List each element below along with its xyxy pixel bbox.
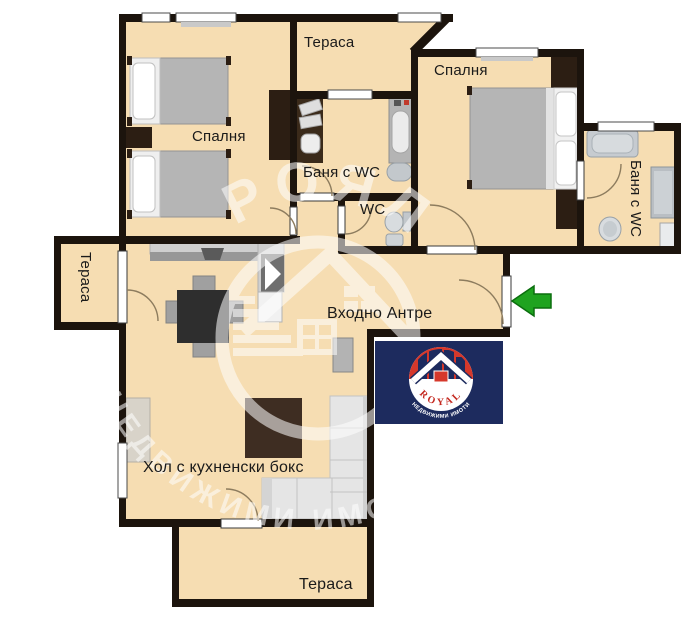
double-bed-icon <box>467 86 578 189</box>
room-label-bathroom-right: Баня с WC <box>627 160 644 237</box>
single-bed-icon <box>127 56 231 126</box>
room-label-bathroom-center: Баня с WC <box>303 164 380 181</box>
room-label-entry-hall: Входно Антре <box>327 305 432 323</box>
washer-icon <box>660 223 675 247</box>
nightstand-icon <box>122 127 152 148</box>
wardrobe-icon <box>551 56 577 89</box>
logo-window-icon <box>434 371 448 382</box>
tap-icon <box>394 100 401 106</box>
room-label-terrace-top: Тераса <box>304 34 354 51</box>
valve-icon <box>404 100 409 105</box>
terrace-left-door <box>118 251 127 323</box>
bathroom-right-door <box>577 161 584 200</box>
toilet-bowl-icon <box>603 221 617 237</box>
boiler-icon <box>392 111 409 153</box>
room-label-bedroom-right: Спалня <box>434 62 488 79</box>
royal-logo: ROYAL НЕДВИЖИМИ ИМОТИ <box>375 341 503 424</box>
entrance-arrow-icon <box>512 286 551 316</box>
bedroom-right-door <box>427 246 477 254</box>
room-label-terrace-left: Тераса <box>77 252 94 302</box>
sink-icon <box>654 171 672 214</box>
room-label-wc: WC <box>360 201 385 218</box>
room-label-living-room: Хол с кухненски бокс <box>143 459 304 477</box>
room-label-bedroom-left: Спалня <box>192 128 246 145</box>
bathtub-basin-icon <box>592 134 633 153</box>
kitchen-sink-icon <box>201 248 224 260</box>
floor-plan-image: РОЯЛ НЕДВИЖИМИ ИМОТИ ROYAL НЕДВИЖИМИ ИМО… <box>0 0 692 627</box>
wardrobe-icon <box>556 183 577 229</box>
room-label-terrace-bottom: Тераса <box>299 576 353 594</box>
